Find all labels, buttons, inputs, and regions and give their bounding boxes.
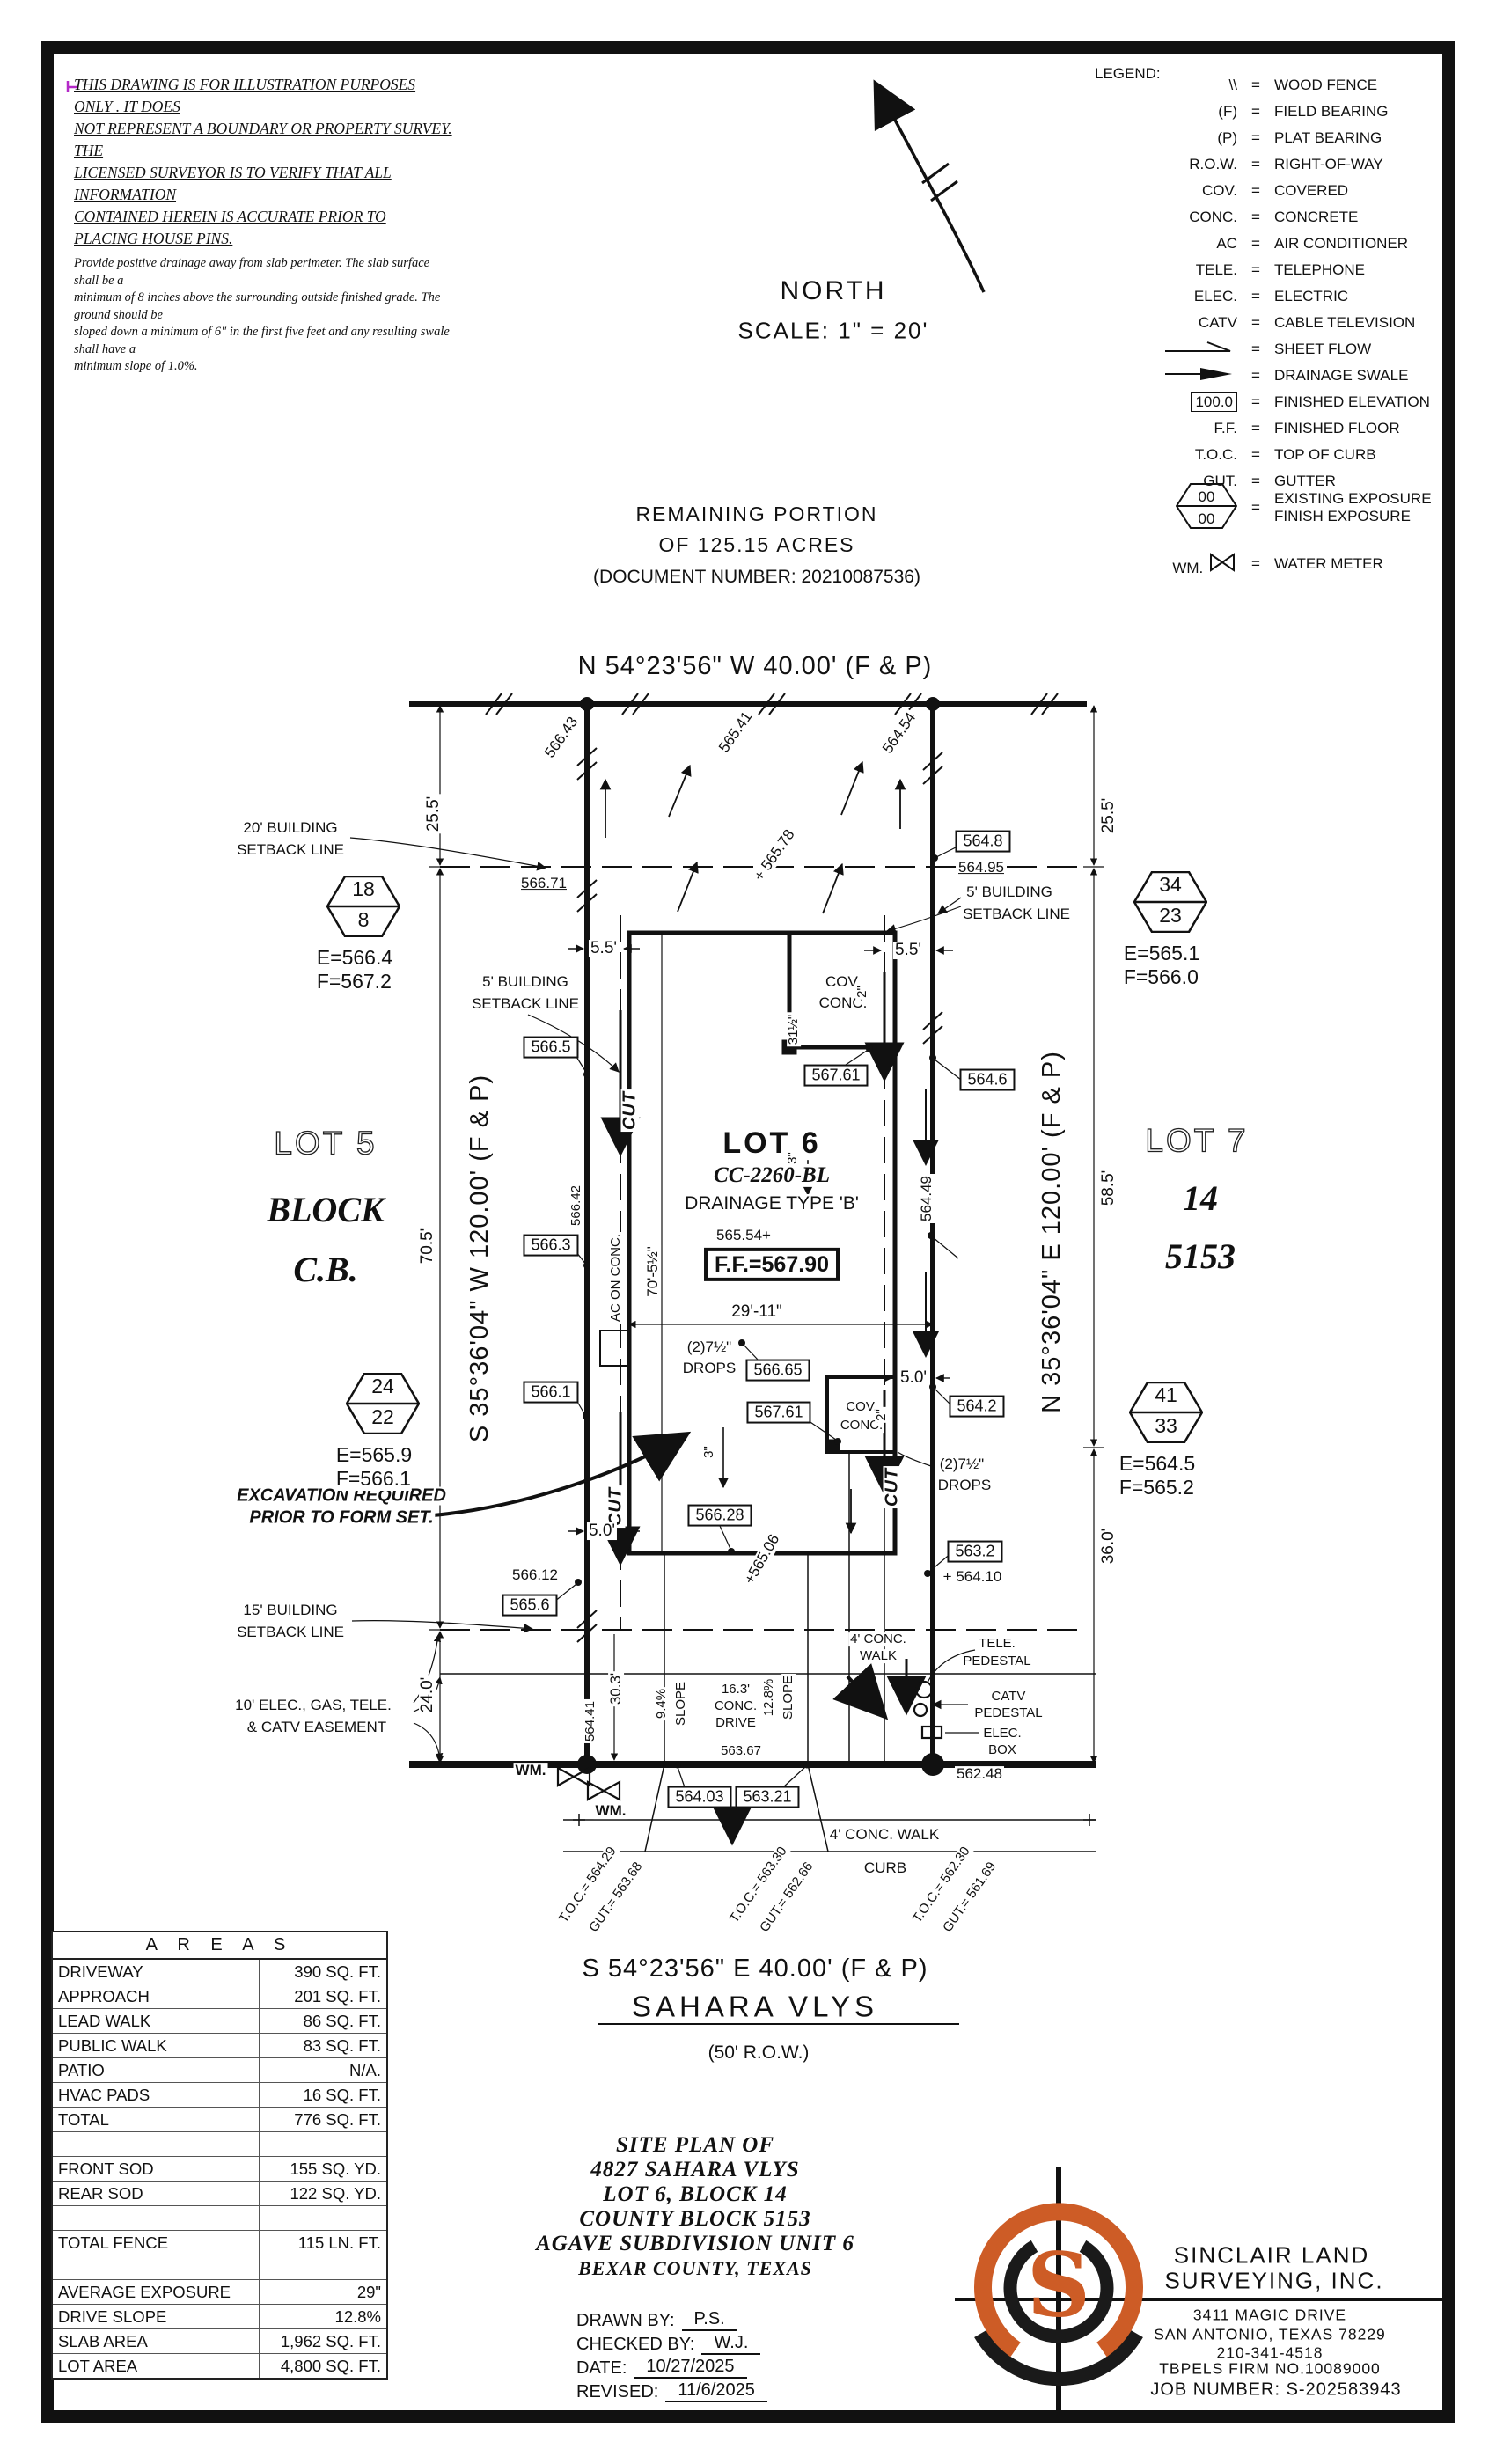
areas-table-row xyxy=(52,2255,387,2280)
plan-label: 567.61 xyxy=(746,1402,810,1424)
plan-label: 564.54 xyxy=(879,708,920,758)
areas-table: A R E A SDRIVEWAY390 SQ. FT.APPROACH201 … xyxy=(51,1931,388,2380)
plan-label: 566.5 xyxy=(523,1037,578,1059)
area-label: PATIO xyxy=(52,2058,260,2083)
finish-exposure-value: 8 xyxy=(326,908,400,932)
plan-label: 5.0' xyxy=(898,1369,928,1387)
legend-row: CATV=CABLE TELEVISION xyxy=(1098,310,1450,336)
plan-label: WALK xyxy=(858,1649,898,1663)
legend-row: =SHEET FLOW xyxy=(1098,336,1450,363)
plan-label: + 565.78 xyxy=(750,825,798,885)
area-label: FRONT SOD xyxy=(52,2157,260,2182)
document-number: (DOCUMENT NUMBER: 20210087536) xyxy=(591,568,922,587)
exposure-hex-marker: 188 xyxy=(326,876,400,937)
area-value xyxy=(260,2206,388,2231)
company-firm-number: TBPELS FIRM NO.10089000 xyxy=(1159,2360,1381,2379)
field-value: 11/6/2025 xyxy=(665,2380,767,2402)
drainage-note-line: minimum of 8 inches above the surroundin… xyxy=(74,290,452,324)
equals-sign: = xyxy=(1237,420,1274,437)
plan-label: 564.2 xyxy=(949,1396,1004,1418)
area-label: LOT AREA xyxy=(52,2354,260,2380)
plan-label: 14 xyxy=(1181,1180,1220,1217)
lot6-label: LOT 6 xyxy=(721,1128,822,1160)
equals-sign: = xyxy=(1237,103,1274,121)
equals-sign: = xyxy=(1237,182,1274,200)
disclaimer-line: LICENSED SURVEYOR IS TO VERIFY THAT ALL … xyxy=(74,162,452,206)
plan-label: 2" xyxy=(855,984,869,1000)
plan-label: 563.21 xyxy=(735,1786,799,1808)
plan-label: 70.5' xyxy=(419,1227,436,1266)
plan-label: 564.03 xyxy=(667,1786,731,1808)
area-label: REAR SOD xyxy=(52,2182,260,2206)
plan-label: PEDESTAL xyxy=(972,1706,1044,1720)
north-arrow-icon xyxy=(876,84,984,292)
equals-sign: = xyxy=(1237,393,1274,411)
area-label: DRIVEWAY xyxy=(52,1959,260,1984)
logo-letter: S xyxy=(1027,2233,1090,2336)
plan-label: TELE. xyxy=(977,1637,1017,1651)
plan-label: ELEC. xyxy=(981,1727,1023,1741)
areas-table-row: TOTAL776 SQ. FT. xyxy=(52,2108,387,2132)
legend-row: \\=WOOD FENCE xyxy=(1098,72,1450,99)
remaining-portion-line1: REMAINING PORTION xyxy=(634,503,879,524)
plan-label: 16.3' xyxy=(720,1683,752,1697)
title-block-line: LOT 6, BLOCK 14 xyxy=(506,2182,884,2207)
area-label: PUBLIC WALK xyxy=(52,2034,260,2058)
plan-label: CATV xyxy=(990,1690,1028,1704)
existing-exposure-value: 24 xyxy=(346,1375,420,1398)
plan-label: 9.4% xyxy=(655,1687,669,1720)
plan-label: C.B. xyxy=(291,1251,359,1288)
wm-icon: WM. xyxy=(1098,552,1237,577)
areas-table-title: A R E A S xyxy=(52,1932,387,1959)
areas-table-row: REAR SOD122 SQ. YD. xyxy=(52,2182,387,2206)
area-label: SLAB AREA xyxy=(52,2329,260,2354)
legend-row: TELE.=TELEPHONE xyxy=(1098,257,1450,283)
area-label: TOTAL xyxy=(52,2108,260,2132)
legend-description: WOOD FENCE xyxy=(1274,77,1377,94)
plan-label: 15' BUILDING xyxy=(241,1602,339,1618)
exposure-hex-marker: 4133 xyxy=(1129,1382,1203,1443)
plan-label: 5153 xyxy=(1163,1238,1237,1275)
legend-row: (F)=FIELD BEARING xyxy=(1098,99,1450,125)
plan-label: (2)7½" xyxy=(686,1339,733,1355)
legend-row: 0000=EXISTING EXPOSUREFINISH EXPOSURE xyxy=(1098,495,1450,521)
legend-row: (P)=PLAT BEARING xyxy=(1098,125,1450,151)
legend-abbrev: T.O.C. xyxy=(1098,446,1237,464)
company-name-line2: SURVEYING, INC. xyxy=(1164,2268,1383,2295)
field-label: DRAWN BY: xyxy=(576,2311,675,2331)
bearing-south: S 54°23'56" E 40.00' (F & P) xyxy=(580,1955,929,1982)
plan-label: 30.3' xyxy=(608,1671,624,1706)
legend-description: TOP OF CURB xyxy=(1274,446,1376,464)
legend-description: AIR CONDITIONER xyxy=(1274,235,1408,253)
plan-label: 4' CONC. WALK xyxy=(828,1827,941,1843)
remaining-portion-line2: OF 125.15 ACRES xyxy=(656,534,856,555)
plan-label: SETBACK LINE xyxy=(235,842,346,858)
areas-table-row: PATION/A. xyxy=(52,2058,387,2083)
plan-label: CUT xyxy=(884,1466,902,1508)
title-block-line: BEXAR COUNTY, TEXAS xyxy=(506,2256,884,2281)
plan-label: SLOPE xyxy=(781,1674,796,1721)
plan-label: 31½" xyxy=(787,1013,801,1047)
legend-description: EXISTING EXPOSUREFINISH EXPOSURE xyxy=(1274,490,1432,525)
area-value: N/A. xyxy=(260,2058,388,2083)
title-block-field: REVISED:11/6/2025 xyxy=(576,2379,767,2402)
plan-label: 564.6 xyxy=(959,1069,1015,1091)
area-value: 776 SQ. FT. xyxy=(260,2108,388,2132)
legend-row: AC=AIR CONDITIONER xyxy=(1098,231,1450,257)
plan-label: 566.71 xyxy=(519,876,568,891)
equals-sign: = xyxy=(1237,156,1274,173)
bearing-north: N 54°23'56" W 40.00' (F & P) xyxy=(576,653,935,679)
plan-label: AC ON CONC. xyxy=(609,1232,623,1324)
water-meter-icon xyxy=(588,1782,620,1800)
drainage-note-line: Provide positive drainage away from slab… xyxy=(74,255,452,290)
svg-text:00: 00 xyxy=(1199,488,1215,505)
legend-row: 100.0=FINISHED ELEVATION xyxy=(1098,389,1450,415)
legend-description: FIELD BEARING xyxy=(1274,103,1388,121)
disclaimer-note: THIS DRAWING IS FOR ILLUSTRATION PURPOSE… xyxy=(74,74,452,376)
elec-box-icon xyxy=(922,1727,942,1738)
title-block: SITE PLAN OF4827 SAHARA VLYSLOT 6, BLOCK… xyxy=(506,2133,884,2281)
plan-label: 566.28 xyxy=(687,1505,752,1527)
catv-pedestal-icon xyxy=(914,1704,927,1716)
equals-sign: = xyxy=(1237,555,1274,573)
plan-label: 567.61 xyxy=(803,1065,868,1087)
plan-label: PEDESTAL xyxy=(961,1654,1032,1668)
plan-label: 566.43 xyxy=(541,713,583,762)
legend-row: T.O.C.=TOP OF CURB xyxy=(1098,442,1450,468)
legend-row: CONC.=CONCRETE xyxy=(1098,204,1450,231)
legend-abbrev: AC xyxy=(1098,235,1237,253)
plan-label: 10' ELEC., GAS, TELE. xyxy=(233,1698,393,1713)
legend-abbrev: CATV xyxy=(1098,314,1237,332)
plan-label: SETBACK LINE xyxy=(235,1624,346,1640)
field-label: DATE: xyxy=(576,2358,627,2379)
legend-abbrev: \\ xyxy=(1098,77,1237,94)
field-value: P.S. xyxy=(682,2309,737,2331)
title-block-field: CHECKED BY:W.J. xyxy=(576,2331,767,2355)
equals-sign: = xyxy=(1237,446,1274,464)
area-value: 83 SQ. FT. xyxy=(260,2034,388,2058)
lot5-label: LOT 5 xyxy=(272,1127,378,1162)
legend-description: CABLE TELEVISION xyxy=(1274,314,1415,332)
plan-label: CC-2260-BL xyxy=(712,1164,832,1187)
equals-sign: = xyxy=(1237,129,1274,147)
plan-label: + 564.10 xyxy=(942,1569,1004,1585)
plan-label: 5' BUILDING xyxy=(480,974,570,990)
area-label: HVAC PADS xyxy=(52,2083,260,2108)
plan-label: 36.0' xyxy=(1100,1527,1118,1566)
equals-sign: = xyxy=(1237,261,1274,279)
plan-label: 565.6 xyxy=(502,1595,557,1617)
plan-label: 5.5' xyxy=(893,942,923,959)
right-of-way-width: (50' R.O.W.) xyxy=(707,2043,811,2063)
equals-sign: = xyxy=(1237,367,1274,385)
legend-row: ELEC.=ELECTRIC xyxy=(1098,283,1450,310)
disclaimer-line: NOT REPRESENT A BOUNDARY OR PROPERTY SUR… xyxy=(74,118,452,162)
area-label xyxy=(52,2206,260,2231)
areas-table-row: AVERAGE EXPOSURE29" xyxy=(52,2280,387,2305)
legend-abbrev: CONC. xyxy=(1098,209,1237,226)
legend-description: GUTTER xyxy=(1274,473,1336,490)
title-block-field: DATE:10/27/2025 xyxy=(576,2355,767,2379)
box-icon: 100.0 xyxy=(1098,392,1237,412)
plan-label: WM. xyxy=(514,1763,548,1778)
plan-label: DROPS xyxy=(936,1478,993,1493)
plan-label: WM. xyxy=(594,1803,628,1819)
legend-description: SHEET FLOW xyxy=(1274,341,1371,358)
finish-exposure-value: 33 xyxy=(1129,1414,1203,1438)
areas-table-row: HVAC PADS16 SQ. FT. xyxy=(52,2083,387,2108)
equals-sign: = xyxy=(1237,235,1274,253)
elevation-ef-values: E=564.5F=565.2 xyxy=(1119,1452,1195,1500)
legend-abbrev: R.O.W. xyxy=(1098,156,1237,173)
arrow-filled-icon xyxy=(1098,365,1237,387)
street-name: SAHARA VLYS xyxy=(630,1992,880,2023)
plan-label: DRAINAGE TYPE 'B' xyxy=(683,1194,861,1214)
plan-label: 5.5' xyxy=(589,940,619,957)
company-name-line1: SINCLAIR LAND xyxy=(1174,2242,1370,2270)
legend-row: R.O.W.=RIGHT-OF-WAY xyxy=(1098,151,1450,178)
scale-label: SCALE: 1" = 20' xyxy=(738,318,929,345)
area-label xyxy=(52,2132,260,2157)
exposure-hex-marker: 2422 xyxy=(346,1373,420,1434)
areas-table-row: LOT AREA4,800 SQ. FT. xyxy=(52,2354,387,2380)
plan-label: +565.06 xyxy=(741,1530,783,1588)
field-value: W.J. xyxy=(701,2333,760,2355)
finish-exposure-value: 23 xyxy=(1133,904,1207,928)
site-plan-sheet: THIS DRAWING IS FOR ILLUSTRATION PURPOSE… xyxy=(0,0,1496,2464)
field-label: CHECKED BY: xyxy=(576,2335,694,2355)
plan-label: 566.1 xyxy=(523,1382,578,1404)
plan-label: SETBACK LINE xyxy=(961,906,1072,922)
legend-description: WATER METER xyxy=(1274,555,1383,573)
plan-label: 5' BUILDING xyxy=(964,884,1054,900)
plan-label: SLOPE xyxy=(674,1680,688,1727)
legend-abbrev: ELEC. xyxy=(1098,288,1237,305)
title-block-line: 4827 SAHARA VLYS xyxy=(506,2158,884,2182)
finished-floor-elevation: F.F.=567.90 xyxy=(704,1248,840,1281)
plan-label: BOX xyxy=(986,1743,1018,1757)
legend-row: F.F.=FINISHED FLOOR xyxy=(1098,415,1450,442)
plan-label: CURB xyxy=(862,1860,908,1876)
plan-label: 566.42 xyxy=(569,1184,583,1228)
plan-label: SETBACK LINE xyxy=(470,996,581,1012)
existing-exposure-value: 34 xyxy=(1133,873,1207,897)
equals-sign: = xyxy=(1237,314,1274,332)
legend-abbrev: F.F. xyxy=(1098,420,1237,437)
area-value: 201 SQ. FT. xyxy=(260,1984,388,2009)
area-value: 390 SQ. FT. xyxy=(260,1959,388,1984)
disclaimer-line: CONTAINED HEREIN IS ACCURATE PRIOR TO PL… xyxy=(74,206,452,250)
plan-label: 70'-5½" xyxy=(645,1244,661,1298)
equals-sign: = xyxy=(1237,341,1274,358)
plan-label: 3" xyxy=(786,1150,800,1166)
plan-label: 566.3 xyxy=(523,1235,578,1257)
plan-label: 564.41 xyxy=(583,1699,598,1743)
job-number: JOB NUMBER: S-202583943 xyxy=(1150,2380,1401,2401)
area-label: AVERAGE EXPOSURE xyxy=(52,2280,260,2305)
area-value: 16 SQ. FT. xyxy=(260,2083,388,2108)
area-label: LEAD WALK xyxy=(52,2009,260,2034)
exposure-hex-marker: 3423 xyxy=(1133,871,1207,933)
plan-label: 25.5' xyxy=(1100,796,1118,836)
plan-label: 3" xyxy=(702,1444,716,1460)
plan-label: CUT xyxy=(621,1089,640,1132)
north-label: NORTH xyxy=(780,276,886,306)
plan-label: & CATV EASEMENT xyxy=(246,1720,388,1735)
plan-label: 564.8 xyxy=(955,831,1010,853)
areas-table-row: DRIVE SLOPE12.8% xyxy=(52,2305,387,2329)
legend-abbrev: COV. xyxy=(1098,182,1237,200)
title-block-fields: DRAWN BY:P.S.CHECKED BY:W.J.DATE:10/27/2… xyxy=(576,2307,767,2402)
disclaimer-line: THIS DRAWING IS FOR ILLUSTRATION PURPOSE… xyxy=(74,74,452,118)
area-value: 115 LN. FT. xyxy=(260,2231,388,2255)
plan-label: 29'-11" xyxy=(730,1303,784,1321)
area-label: DRIVE SLOPE xyxy=(52,2305,260,2329)
elevation-ef-values: E=565.9F=566.1 xyxy=(336,1443,412,1491)
plan-label: 566.12 xyxy=(510,1567,560,1583)
plan-label: DRIVE xyxy=(714,1716,758,1730)
plan-label: 25.5' xyxy=(425,795,443,834)
equals-sign: = xyxy=(1237,473,1274,490)
legend-description: ELECTRIC xyxy=(1274,288,1348,305)
excavation-note-line2: PRIOR TO FORM SET. xyxy=(247,1509,435,1528)
field-value: 10/27/2025 xyxy=(634,2357,746,2379)
company-address2: SAN ANTONIO, TEXAS 78229 xyxy=(1154,2326,1386,2344)
legend-description: DRAINAGE SWALE xyxy=(1274,367,1408,385)
plan-label: 563.67 xyxy=(719,1744,763,1758)
plan-label: DROPS xyxy=(681,1360,737,1376)
title-block-line: SITE PLAN OF xyxy=(506,2133,884,2158)
equals-sign: = xyxy=(1237,288,1274,305)
areas-table-row: SLAB AREA1,962 SQ. FT. xyxy=(52,2329,387,2354)
area-value: 86 SQ. FT. xyxy=(260,2009,388,2034)
plan-label: CONC. xyxy=(713,1699,759,1713)
legend-abbrev: TELE. xyxy=(1098,261,1237,279)
area-value: 122 SQ. YD. xyxy=(260,2182,388,2206)
plan-label: 2" xyxy=(875,1407,889,1423)
bearing-west: S 35°36'04" W 120.00' (F & P) xyxy=(466,1073,493,1444)
legend-row: WM. =WATER METER xyxy=(1098,551,1450,577)
plan-label: 563.2 xyxy=(947,1541,1002,1563)
equals-sign: = xyxy=(1237,499,1274,517)
legend-description: COVERED xyxy=(1274,182,1348,200)
areas-table-row: DRIVEWAY390 SQ. FT. xyxy=(52,1959,387,1984)
tele-pedestal-icon xyxy=(916,1682,932,1698)
areas-table-row: PUBLIC WALK83 SQ. FT. xyxy=(52,2034,387,2058)
hex-icon: 0000 xyxy=(1098,483,1237,533)
areas-table-row: LEAD WALK86 SQ. FT. xyxy=(52,2009,387,2034)
legend-row: COV.=COVERED xyxy=(1098,178,1450,204)
area-value xyxy=(260,2132,388,2157)
water-meter-icon xyxy=(558,1768,590,1786)
arrow-open-icon xyxy=(1098,339,1237,361)
legend-description: FINISHED FLOOR xyxy=(1274,420,1400,437)
legend-abbrev: (F) xyxy=(1098,103,1237,121)
legend-description: TELEPHONE xyxy=(1274,261,1365,279)
areas-table-row xyxy=(52,2132,387,2157)
plan-label: 58.5' xyxy=(1100,1169,1118,1208)
area-label: TOTAL FENCE xyxy=(52,2231,260,2255)
areas-table-row: TOTAL FENCE115 LN. FT. xyxy=(52,2231,387,2255)
areas-table-row: FRONT SOD155 SQ. YD. xyxy=(52,2157,387,2182)
lot7-label: LOT 7 xyxy=(1143,1125,1250,1159)
company-address1: 3411 MAGIC DRIVE xyxy=(1193,2306,1346,2325)
plan-label: 24.0' xyxy=(419,1676,436,1715)
areas-table-row: APPROACH201 SQ. FT. xyxy=(52,1984,387,2009)
bearing-east: N 35°36'04" E 120.00' (F & P) xyxy=(1038,1049,1065,1415)
plan-label: 562.48 xyxy=(955,1766,1004,1782)
plan-label: 20' BUILDING xyxy=(241,820,339,836)
plan-label: 4' CONC. xyxy=(848,1632,908,1646)
drainage-note-line: minimum slope of 1.0%. xyxy=(74,358,452,376)
existing-exposure-value: 41 xyxy=(1129,1383,1203,1407)
area-label: APPROACH xyxy=(52,1984,260,2009)
areas-table-row xyxy=(52,2206,387,2231)
area-value: 29" xyxy=(260,2280,388,2305)
plan-label: (2)7½" xyxy=(938,1456,986,1472)
area-value xyxy=(260,2255,388,2280)
existing-exposure-value: 18 xyxy=(326,877,400,901)
title-block-line: AGAVE SUBDIVISION UNIT 6 xyxy=(506,2232,884,2256)
legend-row: =DRAINAGE SWALE xyxy=(1098,363,1450,389)
svg-text:00: 00 xyxy=(1199,510,1215,527)
legend-description: RIGHT-OF-WAY xyxy=(1274,156,1383,173)
drainage-note-line: sloped down a minimum of 6" in the first… xyxy=(74,324,452,358)
area-value: 12.8% xyxy=(260,2305,388,2329)
field-label: REVISED: xyxy=(576,2382,658,2402)
area-value: 155 SQ. YD. xyxy=(260,2157,388,2182)
elevation-ef-values: E=566.4F=567.2 xyxy=(317,946,392,994)
plan-label: 564.49 xyxy=(919,1174,935,1223)
plan-label: 565.41 xyxy=(715,708,757,757)
equals-sign: = xyxy=(1237,209,1274,226)
legend-description: PLAT BEARING xyxy=(1274,129,1382,147)
area-label xyxy=(52,2255,260,2280)
finish-exposure-value: 22 xyxy=(346,1405,420,1429)
plan-label: BLOCK xyxy=(265,1192,385,1228)
title-block-line: COUNTY BLOCK 5153 xyxy=(506,2207,884,2232)
plan-label: 565.54+ xyxy=(715,1228,773,1243)
plan-label: 12.8% xyxy=(762,1677,776,1719)
title-block-field: DRAWN BY:P.S. xyxy=(576,2307,767,2331)
legend-description: FINISHED ELEVATION xyxy=(1274,393,1430,411)
legend-abbrev: (P) xyxy=(1098,129,1237,147)
equals-sign: = xyxy=(1237,77,1274,94)
plan-label: 564.95 xyxy=(957,860,1006,876)
area-value: 4,800 SQ. FT. xyxy=(260,2354,388,2380)
plan-label: 5.0' xyxy=(587,1522,617,1540)
area-value: 1,962 SQ. FT. xyxy=(260,2329,388,2354)
legend-description: CONCRETE xyxy=(1274,209,1358,226)
elevation-ef-values: E=565.1F=566.0 xyxy=(1124,942,1199,989)
plan-label: 566.65 xyxy=(745,1360,810,1382)
